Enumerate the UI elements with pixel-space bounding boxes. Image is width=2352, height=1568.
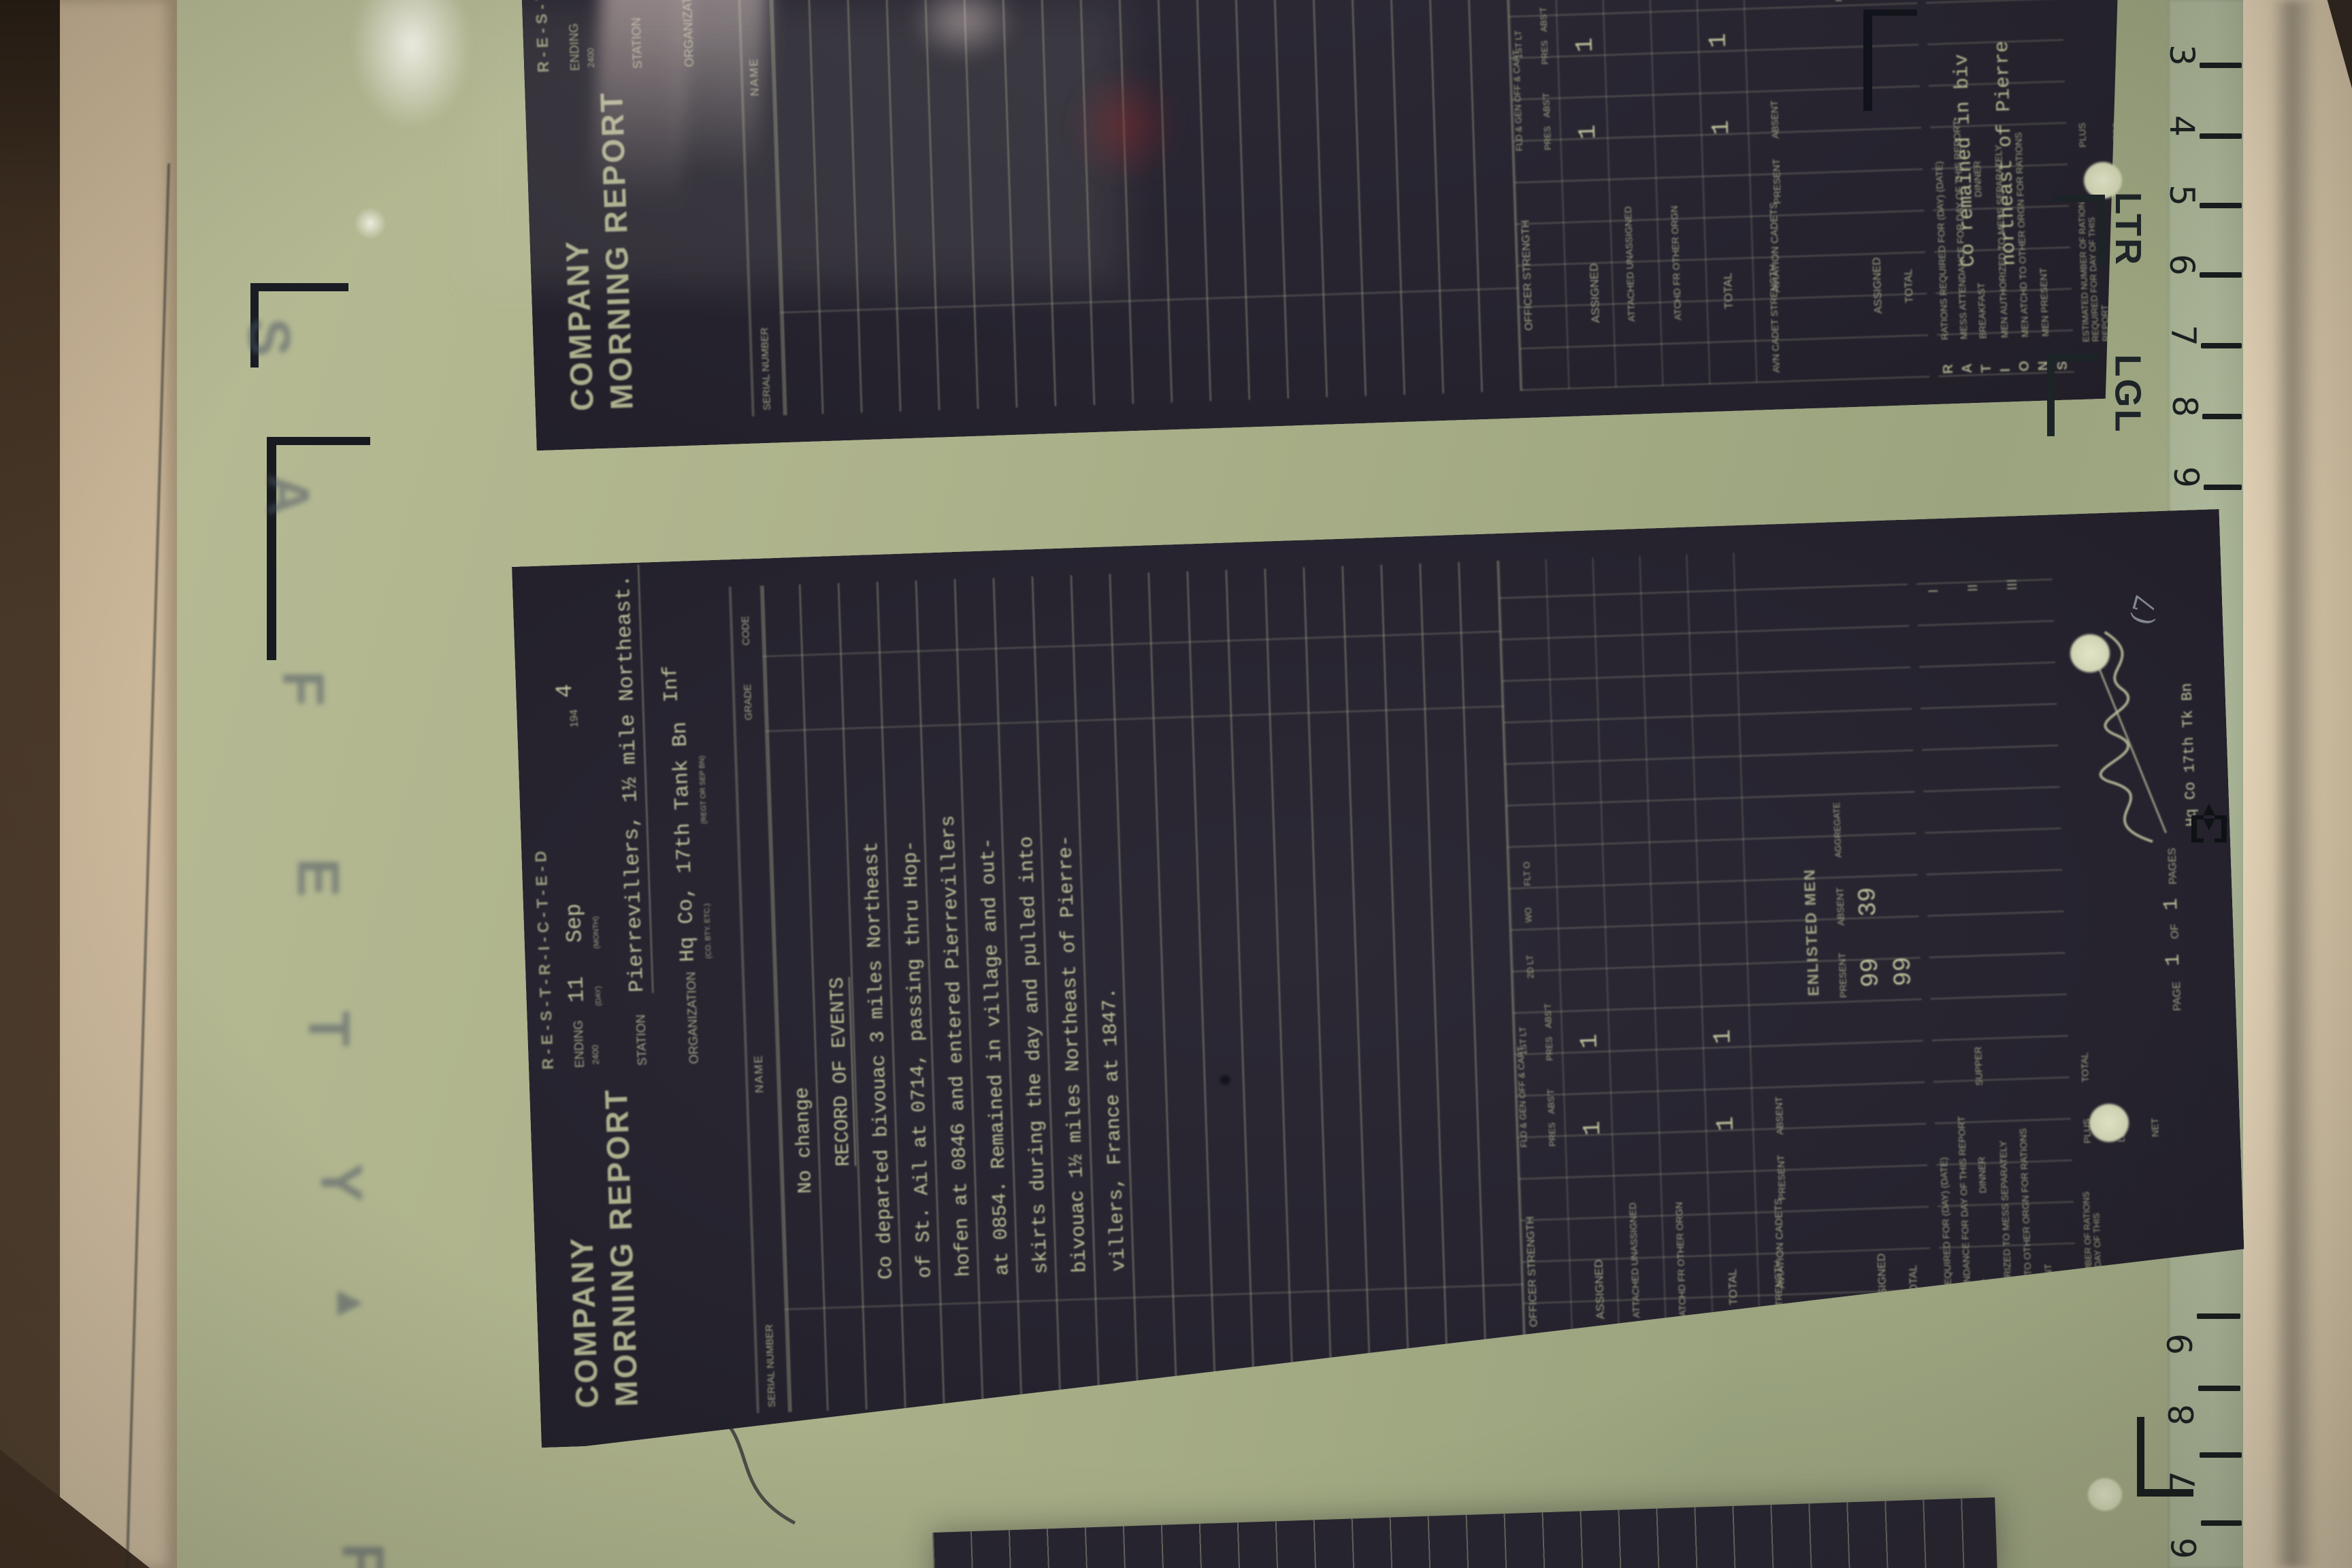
ruler-number: 6 bbox=[2165, 1537, 2204, 1559]
ltr-corner-bracket bbox=[2054, 195, 2105, 267]
column-label: PRES bbox=[1543, 126, 1553, 150]
form-title: MORNING REPORT bbox=[594, 91, 639, 410]
name-header: NAME bbox=[752, 1054, 766, 1094]
inter-frame-corner-bracket bbox=[1863, 10, 1917, 111]
organization-sublabel: (CO. BTY. ETC.) bbox=[703, 903, 713, 958]
film-safety-letter: A bbox=[255, 474, 322, 516]
column-label: PRES bbox=[1548, 1122, 1558, 1147]
punch-hole bbox=[2089, 1104, 2129, 1142]
absent-label: ABSENT bbox=[1769, 100, 1781, 138]
film-edge-arrow-mark: ▲ bbox=[327, 1281, 378, 1324]
rations-vertical-letter: I bbox=[2003, 1364, 2019, 1368]
roster-column-rule bbox=[765, 706, 1503, 732]
ending-year: 4 bbox=[553, 683, 579, 698]
column-label: PRES bbox=[1544, 1036, 1554, 1061]
next-frame-ruled-lines bbox=[932, 1497, 1997, 1568]
crosshair-left-bracket bbox=[2191, 815, 2204, 843]
strength-value: 99 bbox=[1889, 956, 1918, 987]
morning-report-form-main: R-E-S-T-R-I-C-T-E-D COMPANY MORNING REPO… bbox=[512, 509, 2249, 1448]
rations-section: R A T I O N S RATIONS REQUIRED FOR (DAY)… bbox=[1911, 0, 2074, 377]
avn-cadet-strength-label: AVN CADET STRENGTH bbox=[1769, 314, 1782, 373]
strength-value: 1 bbox=[1709, 1029, 1737, 1045]
film-registration-crosshair: ▲ ▼ bbox=[2193, 802, 2225, 849]
row-label: ASSIGNED bbox=[1592, 1259, 1607, 1319]
station-label: STATION bbox=[630, 17, 645, 69]
ruler-tick bbox=[2200, 133, 2242, 139]
ruler-tick bbox=[2200, 203, 2242, 208]
rations-vertical-letter: N bbox=[2041, 1356, 2057, 1367]
less-label: LESS bbox=[2111, 122, 2123, 146]
name-header: NAME bbox=[748, 57, 762, 97]
strength-value: 99 bbox=[1857, 958, 1885, 988]
month-label: (MONTH) bbox=[591, 916, 601, 949]
column-label: 1ST LT bbox=[1518, 1026, 1529, 1055]
strength-value: 1 bbox=[1574, 125, 1603, 140]
record-line: No change bbox=[791, 1087, 817, 1194]
punch-hole bbox=[2088, 1478, 2122, 1511]
rations-vertical-letter: T bbox=[1984, 1360, 1999, 1369]
rations-label: SUPPER bbox=[1973, 1047, 1984, 1086]
ruler-tick bbox=[2201, 1520, 2242, 1526]
organization-sublabel: (REGT OR SEP BN) bbox=[698, 755, 708, 824]
glare-white-blob bbox=[350, 0, 473, 129]
ruler-number: 3 bbox=[2162, 44, 2202, 66]
column-label: 2D LT bbox=[1525, 955, 1535, 979]
form-title: COMPANY bbox=[559, 239, 600, 412]
row-label: TOTAL bbox=[1908, 1264, 1921, 1299]
column-label: FLT O bbox=[1522, 862, 1533, 886]
officer-strength-label: OFFICER STRENGTH bbox=[1526, 1256, 1540, 1328]
row-label: TOTAL bbox=[1903, 269, 1916, 304]
rations-row-numeral: I bbox=[1926, 589, 1941, 593]
column-label: FLD & GEN OFF & CAPT bbox=[1518, 1088, 1529, 1147]
ending-hour: 2400 bbox=[591, 1045, 601, 1064]
strength-grid-lines bbox=[1494, 0, 1758, 391]
form-title: MORNING REPORT bbox=[599, 1088, 644, 1407]
column-label: FLD & GEN OFF & CAPT bbox=[1513, 91, 1524, 151]
glare-dot bbox=[354, 208, 387, 239]
crosshair-right-bracket bbox=[2215, 815, 2227, 843]
rations-row-numeral: II bbox=[1965, 584, 1980, 592]
absent-label: ABSENT bbox=[1774, 1096, 1785, 1135]
roster-column-rule bbox=[785, 1284, 1523, 1310]
letter-size-mark: LTR bbox=[2107, 192, 2149, 267]
row-label: TOTAL bbox=[1722, 273, 1735, 310]
restricted-code: R-E-S-T-R-I-C-T-E-D bbox=[532, 847, 557, 1070]
rations-vertical-letter: O bbox=[2017, 361, 2033, 372]
ruler-tick bbox=[2200, 63, 2242, 68]
corner-bracket-bottom-right bbox=[2137, 1417, 2193, 1497]
ending-label: ENDING bbox=[572, 1020, 587, 1068]
of-label: OF bbox=[2169, 924, 2181, 939]
film-safety-letter: Y bbox=[307, 1163, 374, 1202]
microfilm-reader-screen: S A F E T Y ▲ F R-E-S-T-R-I-C-T-E-D COMP… bbox=[0, 0, 2352, 1568]
column-label: ABS'T bbox=[1546, 1089, 1557, 1114]
ruler-number: 8 bbox=[2165, 395, 2204, 417]
reader-left-border bbox=[60, 0, 177, 1568]
ending-hour: 2400 bbox=[586, 48, 596, 67]
roster-ruled-area bbox=[756, 0, 1522, 415]
rations-label: BREAKFAST bbox=[1976, 282, 1989, 339]
rations-vertical-letter: T bbox=[1979, 364, 1995, 373]
reader-right-shadow bbox=[2272, 0, 2317, 1568]
rations-label: BREAKFAST bbox=[1981, 1279, 1993, 1335]
roster-column-rule bbox=[780, 287, 1518, 313]
ruler-tick bbox=[2198, 1386, 2240, 1391]
strength-table: OFFICER STRENGTH FLD & GEN OFF & CAPT PR… bbox=[1499, 547, 1935, 1388]
morning-report-frame-main: R-E-S-T-R-I-C-T-E-D COMPANY MORNING REPO… bbox=[512, 509, 2249, 1448]
rations-vertical-letter: A bbox=[1960, 363, 1976, 374]
strength-value: 39 bbox=[1854, 887, 1882, 917]
aviation-cadets-label: AVIATION CADETS bbox=[1774, 1222, 1788, 1289]
ending-label: ENDING bbox=[568, 23, 583, 71]
ruler-number: 4 bbox=[2162, 115, 2202, 137]
grade-header: GRADE bbox=[742, 684, 755, 721]
morning-report-frame-next bbox=[932, 1497, 1997, 1568]
form-title: COMPANY bbox=[564, 1236, 604, 1409]
punch-hole bbox=[2070, 634, 2110, 672]
ruler-number: 7 bbox=[2163, 325, 2203, 346]
net-label: NET bbox=[2150, 1117, 2161, 1137]
ruler-tick bbox=[2200, 1452, 2242, 1458]
ending-day: 11 bbox=[563, 976, 589, 1003]
rations-grid-lines bbox=[1915, 542, 2079, 1373]
ruler-tick bbox=[2201, 343, 2242, 348]
row-label: ASSIGNED bbox=[1588, 263, 1603, 323]
page-number: 1 bbox=[2162, 953, 2186, 966]
total-label: TOTAL bbox=[2079, 1052, 2091, 1082]
column-label: ABS'T bbox=[1541, 93, 1552, 118]
row-label: ASSIGNED bbox=[1871, 257, 1884, 314]
film-safety-letter-partial: F bbox=[329, 1543, 396, 1568]
strength-value: 1 bbox=[1578, 1120, 1607, 1136]
roster-column-rule bbox=[763, 631, 1501, 657]
row-label: ASSIGNED bbox=[1876, 1253, 1889, 1309]
row-label: TOTAL bbox=[1727, 1269, 1740, 1305]
column-label: PRES bbox=[1540, 40, 1550, 65]
organization-value: Hq Co, 17th Tank Bn bbox=[668, 721, 700, 962]
pages-number: 1 bbox=[2160, 898, 2184, 911]
present-label: PRESENT bbox=[1837, 953, 1849, 998]
plus-label: PLUS bbox=[2077, 122, 2089, 148]
ruler-number: 9 bbox=[2166, 466, 2206, 488]
rations-section: R A T I O N S RATIONS REQUIRED FOR (DAY)… bbox=[1915, 542, 2079, 1373]
page-label: PAGE bbox=[2171, 981, 2184, 1011]
ruler-number: 6 bbox=[2162, 254, 2202, 276]
rations-label: DINNER bbox=[1972, 161, 1984, 197]
organization-label: ORGANIZATION bbox=[681, 0, 697, 67]
reader-left-dark-edge bbox=[0, 0, 60, 1568]
column-label: 1ST LT bbox=[1514, 30, 1524, 59]
rations-vertical-letter: A bbox=[1965, 1359, 1980, 1369]
rations-label: MEN PRESENT bbox=[2043, 1264, 2056, 1333]
ruler-tick bbox=[2200, 272, 2242, 278]
ruler-number: 5 bbox=[2162, 184, 2202, 206]
ruler-tick bbox=[2204, 485, 2242, 490]
aviation-cadets-label: AVIATION CADETS bbox=[1769, 226, 1783, 293]
rations-vertical-letter: R bbox=[1941, 364, 1957, 374]
column-label: ABS'T bbox=[1539, 7, 1549, 32]
ink-spot bbox=[1220, 1075, 1230, 1085]
film-safety-letter: S bbox=[235, 318, 302, 357]
station-label: STATION bbox=[634, 1014, 649, 1066]
code-header: CODE bbox=[740, 616, 753, 646]
rations-vertical-letter: O bbox=[2022, 1356, 2038, 1367]
net-label: NET bbox=[2145, 122, 2156, 141]
strength-value: 1 bbox=[1575, 1033, 1604, 1049]
film-scratch bbox=[708, 1409, 830, 1531]
restricted-code: R-E-S-T-R-I-C-T-E-D bbox=[527, 0, 552, 73]
strength-value: 1 bbox=[1704, 33, 1733, 48]
strength-value: 1 bbox=[1571, 37, 1599, 53]
film-corner-bracket-2 bbox=[267, 437, 370, 660]
present-label: PRESENT bbox=[1776, 1155, 1788, 1200]
organization-branch: Inf bbox=[659, 666, 684, 703]
ruler-tick bbox=[2202, 414, 2242, 419]
officer-strength-label: OFFICER STRENGTH bbox=[1521, 260, 1535, 331]
column-label: WO bbox=[1524, 907, 1534, 923]
strength-value: 1 bbox=[1712, 1116, 1740, 1132]
column-label: ABS'T bbox=[1543, 1003, 1554, 1028]
ending-month: Sep bbox=[561, 903, 588, 943]
film-safety-letter: F bbox=[269, 670, 336, 706]
strength-value: 1 bbox=[1708, 120, 1736, 135]
rations-label: DINNER bbox=[1977, 1156, 1989, 1193]
ruler-number: 9 bbox=[2161, 1333, 2200, 1355]
lgl-corner-bracket bbox=[2047, 354, 2100, 436]
rations-vertical-letter: R bbox=[1946, 1360, 1961, 1370]
estimated-rations-label: ESTIMATED NUMBER OF RATIONS REQUIRED FOR… bbox=[2081, 1177, 2116, 1338]
ruler-tick bbox=[2197, 1313, 2240, 1319]
year-prefix: 194 bbox=[568, 709, 581, 728]
organization-label: ORGANIZATION bbox=[685, 971, 701, 1064]
aggregate-label: AGGREGATE bbox=[1832, 802, 1844, 858]
serial-number-header: SERIAL NUMBER bbox=[764, 1324, 779, 1407]
rations-label: MEN PRESENT bbox=[2038, 267, 2051, 337]
rations-vertical-letter: S bbox=[2060, 1357, 2076, 1367]
film-safety-letter: E bbox=[284, 858, 351, 897]
day-label: (DAY) bbox=[594, 986, 603, 1007]
legal-size-mark: LGL bbox=[2106, 355, 2149, 434]
film-safety-letter: T bbox=[295, 1011, 362, 1047]
rations-row-numeral: III bbox=[2005, 578, 2021, 590]
serial-number-header: SERIAL NUMBER bbox=[759, 327, 774, 410]
present-label: PRESENT bbox=[1771, 159, 1783, 204]
rations-vertical-letter: I bbox=[1998, 368, 2014, 372]
station-value: Pierrevillers, 1½ mile Northeast. bbox=[611, 565, 653, 994]
avn-cadet-strength-label: AVN CADET STRENGTH bbox=[1774, 1310, 1786, 1369]
absent-label: ABSENT bbox=[1835, 887, 1846, 926]
pages-label: PAGES bbox=[2166, 847, 2179, 885]
